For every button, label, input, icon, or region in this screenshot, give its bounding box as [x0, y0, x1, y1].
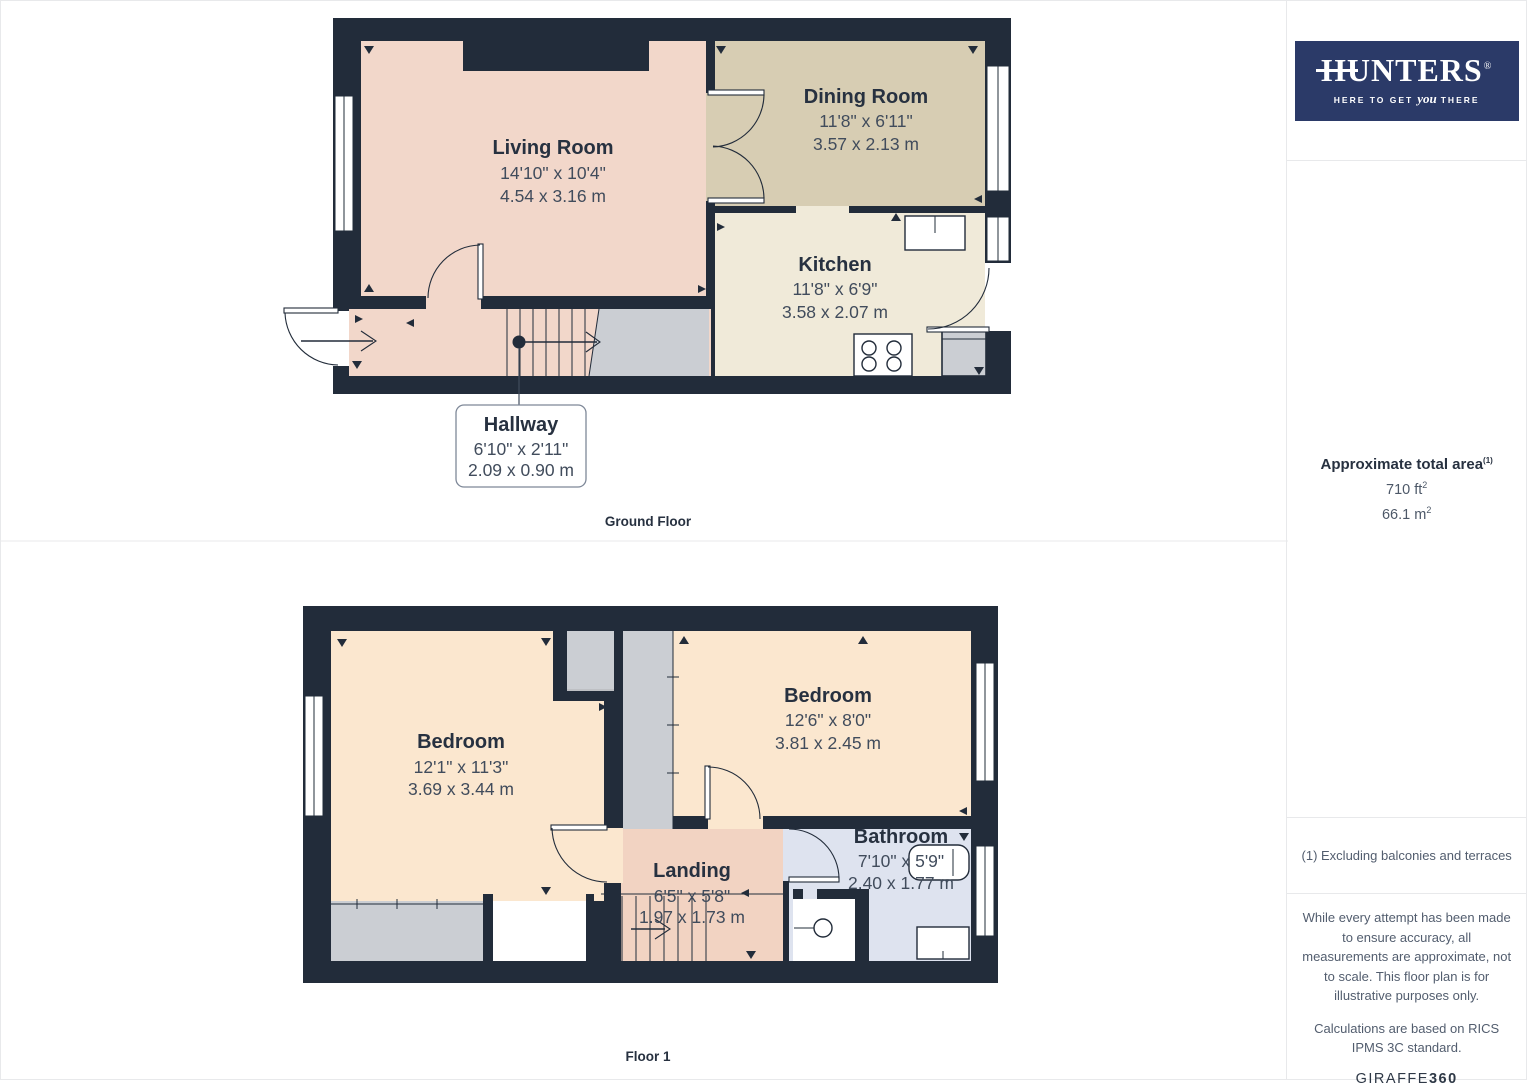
stair-void [493, 901, 593, 961]
entry-door-opening [333, 311, 349, 366]
bedroom1-door-opening [604, 828, 623, 883]
kitchen-window [987, 217, 1009, 261]
dining-room-window [987, 66, 1009, 191]
living-room-metric: 4.54 x 3.16 m [500, 186, 606, 206]
dining-room-metric: 3.57 x 2.13 m [813, 134, 919, 154]
hallway-name: Hallway [484, 414, 559, 436]
kitchen-opening [796, 206, 849, 213]
chimney-breast [463, 41, 649, 71]
first-floor-plan: Bedroom 12'1" x 11'3" 3.69 x 3.44 m Bedr… [303, 606, 998, 1064]
bathroom-imperial: 7'10" x 5'9" [858, 851, 944, 871]
area-footnote: (1) Excluding balconies and terraces [1292, 848, 1522, 863]
floorplan-canvas: Living Room 14'10" x 10'4" 4.54 x 3.16 m… [1, 1, 1286, 1079]
disclaimer-standard: Calculations are based on RICS IPMS 3C s… [1300, 1019, 1513, 1058]
bedroom1-name: Bedroom [417, 731, 505, 753]
hunters-wordmark: HUNTERS® [1321, 54, 1492, 86]
bedroom1-metric: 3.69 x 3.44 m [408, 779, 514, 799]
bathroom-door-opening [783, 829, 789, 881]
logo-crossbar [1316, 69, 1358, 72]
alcove-bottom-wall [553, 689, 621, 701]
dining-room-name: Dining Room [804, 86, 928, 108]
hunters-tagline: HERE TO GET you THERE [1334, 91, 1480, 107]
landing-imperial: 6'5" x 5'8" [654, 886, 731, 906]
ground-floor-plan: Living Room 14'10" x 10'4" 4.54 x 3.16 m… [284, 18, 1011, 529]
giraffe360-credit: GIRAFFE360 [1300, 1071, 1513, 1087]
living-room-window [335, 96, 353, 231]
flat-roof [331, 899, 483, 961]
logo-section: HUNTERS® HERE TO GET you THERE [1287, 1, 1526, 161]
hunters-logo: HUNTERS® HERE TO GET you THERE [1295, 41, 1519, 121]
stairs-alcove [567, 631, 614, 689]
bathroom-window [976, 846, 994, 936]
dining-room-imperial: 11'8" x 6'11" [819, 111, 912, 131]
bedroom1-imperial: 12'1" x 11'3" [414, 757, 509, 777]
floorplans-svg: Living Room 14'10" x 10'4" 4.54 x 3.16 m… [1, 1, 1288, 1081]
floorplan-page: Living Room 14'10" x 10'4" 4.54 x 3.16 m… [0, 0, 1527, 1080]
landing-metric: 1.97 x 1.73 m [639, 907, 745, 927]
total-area-imperial: 710 ft2 [1386, 480, 1427, 498]
bedroom2-door-opening [708, 816, 763, 829]
hallway-imperial: 6'10" x 2'11" [474, 439, 569, 459]
bedroom2-window [976, 663, 994, 781]
bedroom2-imperial: 12'6" x 8'0" [785, 710, 871, 730]
registered-mark: ® [1484, 61, 1493, 72]
shower-tray [917, 927, 969, 959]
wc-enclosure [793, 889, 869, 961]
bedroom2-name: Bedroom [784, 685, 872, 707]
total-area-section: Approximate total area(1) 710 ft2 66.1 m… [1287, 161, 1526, 817]
info-sidebar: HUNTERS® HERE TO GET you THERE Approxima… [1286, 1, 1526, 1079]
footnote-section: (1) Excluding balconies and terraces [1287, 817, 1526, 893]
living-room-imperial: 14'10" x 10'4" [500, 163, 606, 183]
wall-stub [483, 894, 493, 961]
total-area-metric: 66.1 m2 [1382, 505, 1431, 523]
kitchen-imperial: 11'8" x 6'9" [793, 279, 878, 299]
living-door-opening [426, 296, 481, 309]
bedroom2-metric: 3.81 x 2.45 m [775, 733, 881, 753]
bedroom1-window [305, 696, 323, 816]
total-area-title: Approximate total area(1) [1320, 456, 1492, 473]
stairwell [623, 631, 673, 831]
kitchen-hob [854, 334, 912, 376]
landing-name: Landing [653, 860, 731, 882]
living-room-name: Living Room [492, 137, 613, 159]
hallway-metric: 2.09 x 0.90 m [468, 460, 574, 480]
wall-stub [586, 894, 594, 961]
ground-floor-label: Ground Floor [605, 514, 692, 529]
stairs-upper-flight [589, 309, 709, 376]
kitchen-name: Kitchen [798, 254, 871, 276]
disclaimer-section: While every attempt has been made to ens… [1287, 893, 1526, 1079]
bathroom-name: Bathroom [854, 826, 948, 848]
disclaimer-accuracy: While every attempt has been made to ens… [1300, 908, 1513, 1006]
kitchen-metric: 3.58 x 2.07 m [782, 302, 888, 322]
first-floor-label: Floor 1 [625, 1049, 670, 1064]
bathroom-metric: 2.40 x 1.77 m [848, 873, 954, 893]
kitchen-sink [905, 216, 965, 250]
